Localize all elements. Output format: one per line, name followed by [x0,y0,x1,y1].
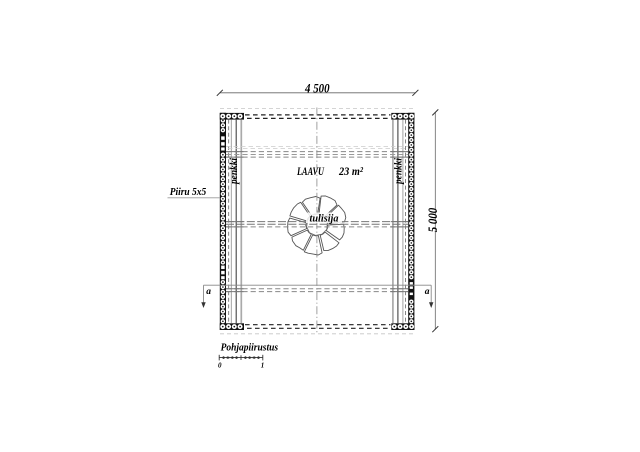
svg-text:a: a [425,287,430,297]
svg-text:23 m²: 23 m² [338,164,363,178]
svg-text:a: a [206,287,211,297]
svg-text:0: 0 [218,362,222,370]
svg-text:penkki: penkki [393,158,404,185]
svg-text:Pohjapiirustus: Pohjapiirustus [221,342,279,354]
svg-text:4 500: 4 500 [304,82,329,96]
svg-text:tulisija: tulisija [310,213,339,225]
svg-text:Piiru 5x5: Piiru 5x5 [170,186,207,198]
svg-text:penkki: penkki [229,158,240,185]
svg-text:5 000: 5 000 [426,208,440,233]
svg-text:LAAVU: LAAVU [296,164,325,178]
svg-text:1: 1 [261,362,265,370]
